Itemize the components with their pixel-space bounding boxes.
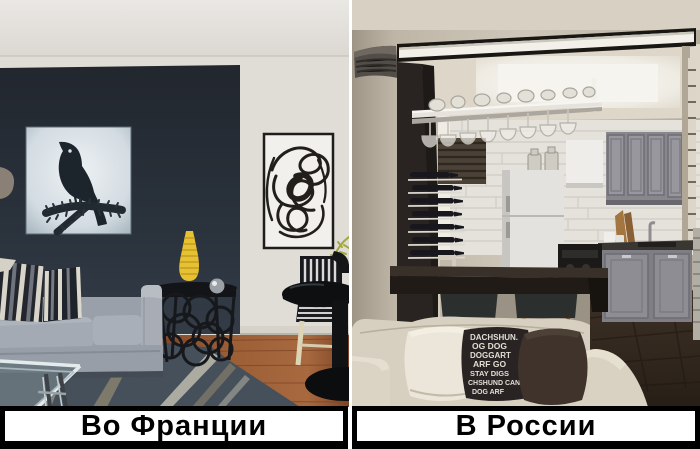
svg-text:DOG ARF: DOG ARF [472,389,505,396]
svg-text:CHSHUND CANI: CHSHUND CANI [468,380,522,387]
svg-text:STAY DIGS: STAY DIGS [470,369,509,378]
svg-text:ARF GO: ARF GO [473,359,506,369]
svg-text:OG DOG: OG DOG [472,341,507,351]
